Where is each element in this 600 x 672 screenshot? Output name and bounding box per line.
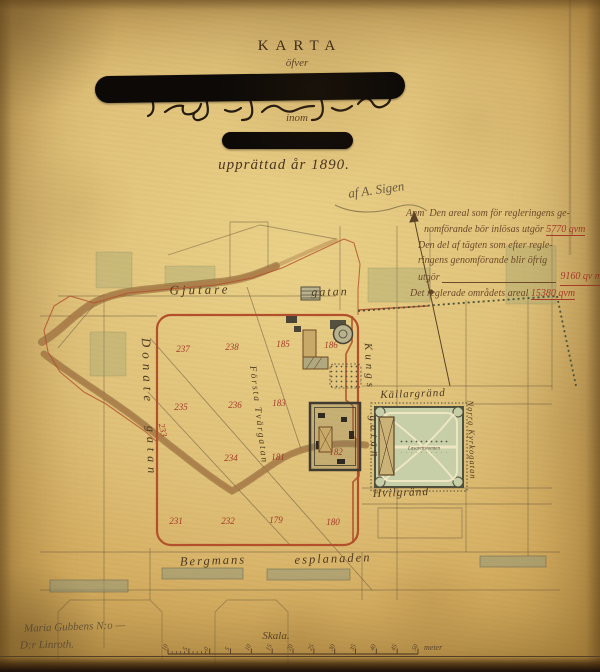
dotted-boundary	[358, 296, 576, 386]
footer-note-2: D:r Linroth.	[20, 639, 74, 652]
annotation-note: Anm Den areal som för regleringens ge-no…	[406, 206, 600, 302]
map-drawing	[0, 0, 600, 672]
annotation-line: ringens genomförande blir öfrig	[406, 253, 600, 269]
annotation-fill-line	[442, 282, 557, 283]
redacted-handwriting-strokes	[148, 94, 390, 120]
dotted-yard	[330, 364, 361, 388]
annotation-line: Det reglerade områdets areal 15380 qvm	[406, 286, 600, 302]
annotation-line: utgör9160 qv m	[406, 269, 600, 286]
scale-unit: meter	[424, 643, 442, 652]
dark-building-block	[310, 403, 360, 470]
esplanade-strips	[50, 556, 546, 592]
park-label: Lasarettstomten	[408, 447, 440, 452]
annotation-line: nomförande bör inlösas utgör 5770 qvm	[406, 222, 600, 238]
annotation-text: Det reglerade områdets areal	[410, 288, 531, 299]
annotation-text: Anm Den areal som för regleringens ge-	[406, 208, 570, 219]
round-structure	[334, 325, 353, 344]
annotation-area-value: 15380 qvm	[531, 288, 575, 300]
scale-label: Skala.	[262, 630, 289, 642]
annotation-text: ringens genomförande blir öfrig	[418, 255, 547, 266]
factory-cluster	[286, 287, 361, 388]
annotation-line: Anm Den areal som för regleringens ge-	[406, 206, 600, 222]
annotation-text: Den del af tägten som efter regle-	[418, 240, 553, 251]
scale-ruler	[168, 649, 418, 655]
annotation-text: nomförande bör inlösas utgör	[424, 224, 546, 235]
annotation-area-value: 5770 qvm	[546, 224, 585, 236]
annotation-text: utgör	[418, 270, 440, 286]
annotation-line: Den del af tägten som efter regle-	[406, 238, 600, 254]
annotation-area-value: 9160 qv m	[560, 269, 600, 286]
map-sheet: KARTA öfver inom upprättad år 1890. af A…	[0, 0, 600, 672]
paper-bottom-edge	[0, 656, 600, 672]
